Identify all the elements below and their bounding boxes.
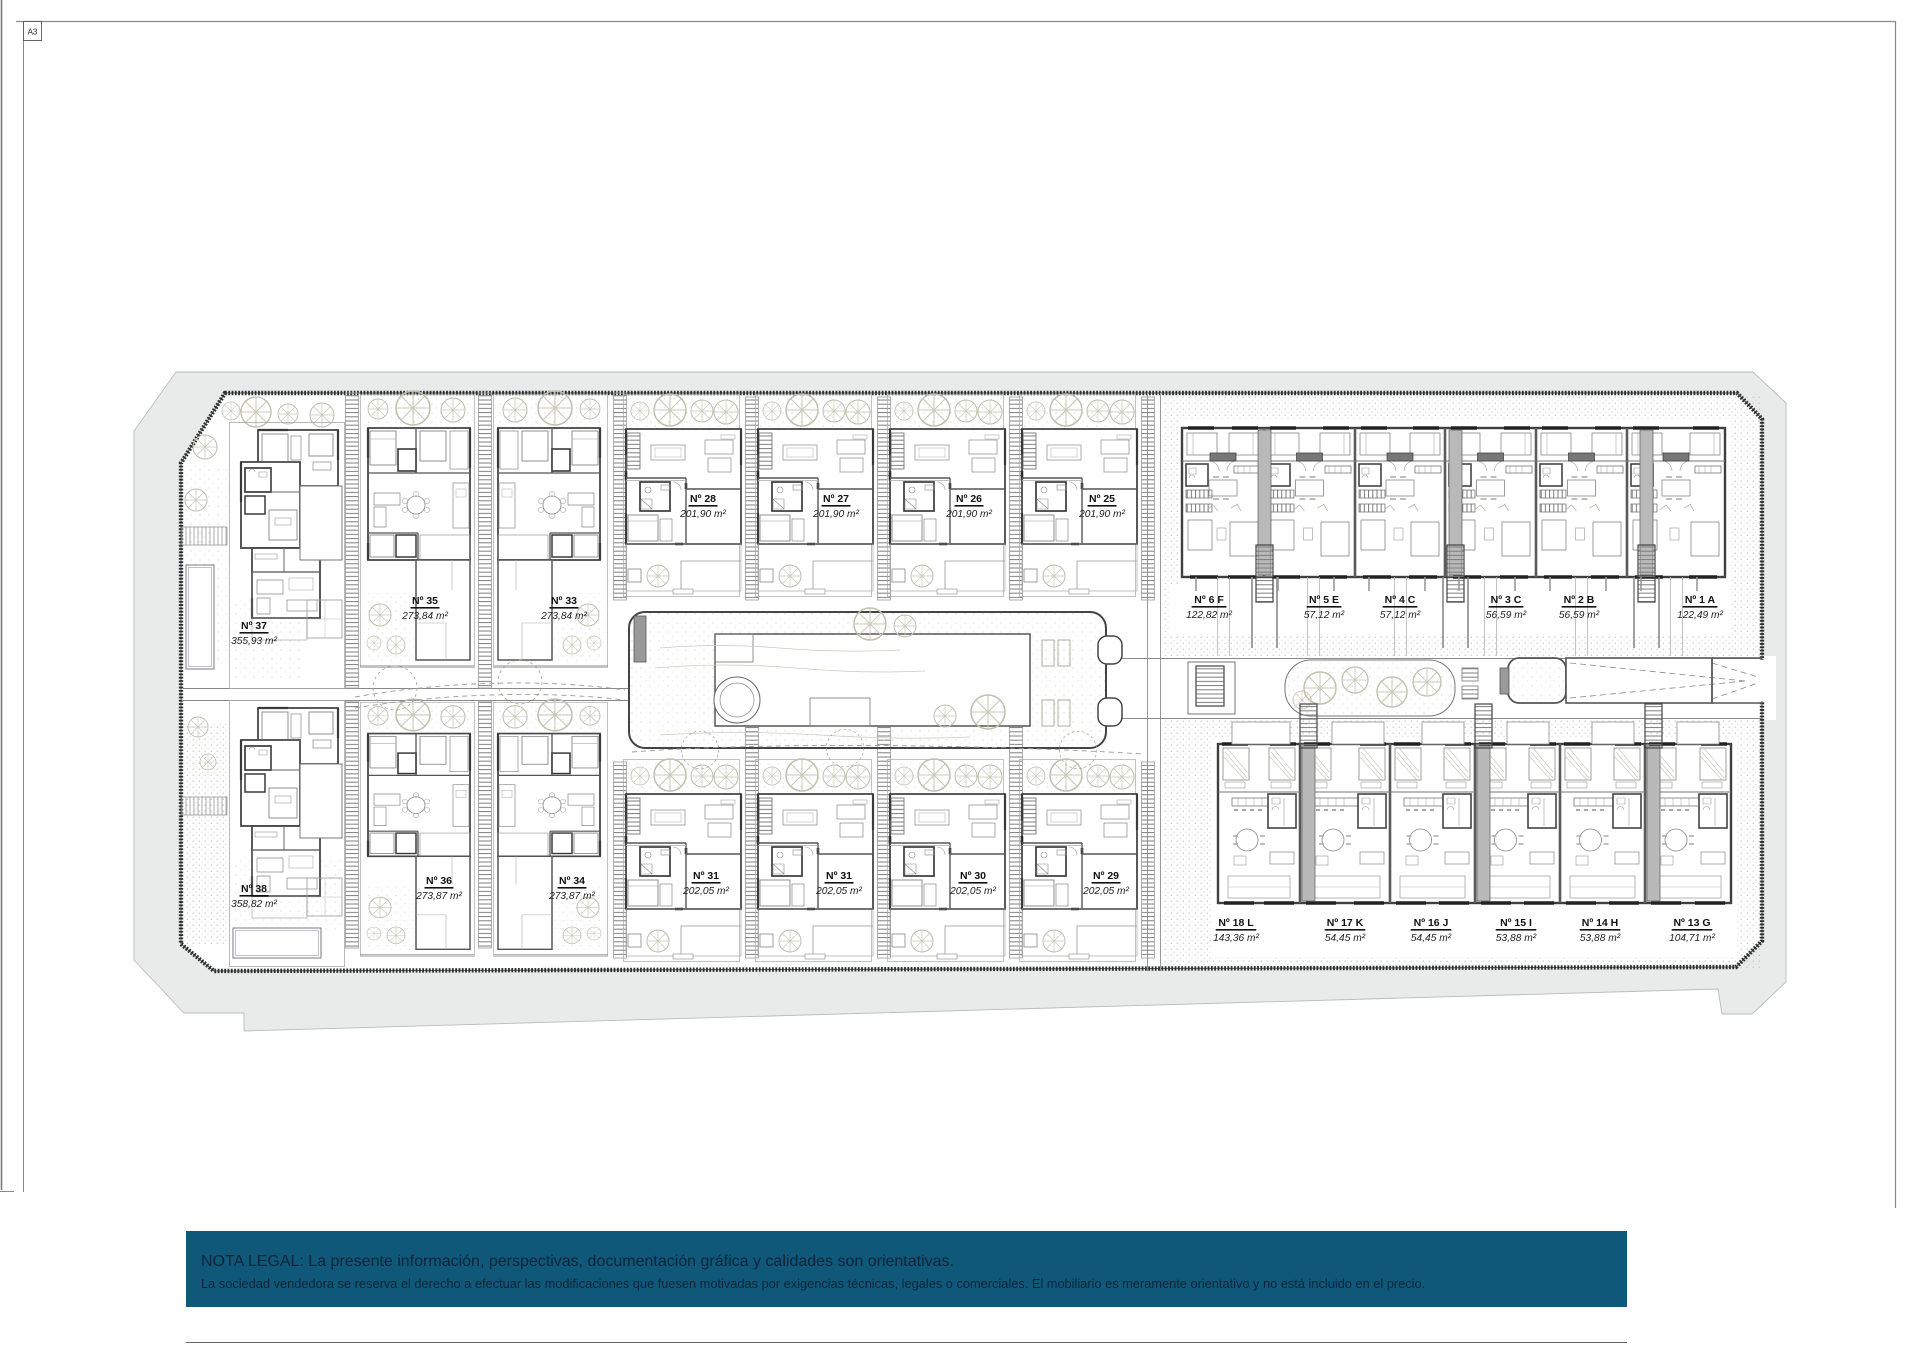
svg-text:Nº 26: Nº 26: [956, 493, 982, 505]
svg-text:Nº 31: Nº 31: [693, 870, 719, 882]
svg-text:122,49 m²: 122,49 m²: [1677, 610, 1723, 621]
svg-text:202,05 m²: 202,05 m²: [815, 886, 862, 897]
svg-text:57,12 m²: 57,12 m²: [1380, 610, 1421, 621]
svg-text:56,59 m²: 56,59 m²: [1559, 610, 1600, 621]
svg-text:NOTA LEGAL: La presente inform: NOTA LEGAL: La presente información, per…: [201, 1253, 954, 1270]
svg-text:Nº 34: Nº 34: [559, 875, 585, 887]
svg-text:Nº 15 I: Nº 15 I: [1500, 917, 1532, 929]
svg-text:104,71 m²: 104,71 m²: [1669, 933, 1715, 944]
svg-text:201,90 m²: 201,90 m²: [812, 509, 859, 520]
svg-text:355,93 m²: 355,93 m²: [231, 636, 277, 647]
svg-text:Nº 14 H: Nº 14 H: [1582, 917, 1619, 929]
svg-text:Nº 30: Nº 30: [960, 870, 986, 882]
svg-text:273,84 m²: 273,84 m²: [540, 611, 587, 622]
svg-text:A3: A3: [28, 28, 38, 37]
svg-text:Nº 16 J: Nº 16 J: [1414, 917, 1449, 929]
svg-text:54,45 m²: 54,45 m²: [1411, 933, 1452, 944]
svg-text:Nº 37: Nº 37: [241, 620, 267, 632]
svg-text:Nº 25: Nº 25: [1089, 493, 1115, 505]
svg-text:54,45 m²: 54,45 m²: [1325, 933, 1366, 944]
svg-text:Nº 29: Nº 29: [1093, 870, 1119, 882]
svg-text:53,88 m²: 53,88 m²: [1580, 933, 1621, 944]
svg-text:273,84 m²: 273,84 m²: [401, 611, 448, 622]
svg-text:122,82 m²: 122,82 m²: [1186, 610, 1232, 621]
svg-text:Nº 17 K: Nº 17 K: [1327, 917, 1364, 929]
svg-text:Nº 4 C: Nº 4 C: [1385, 594, 1416, 606]
svg-text:202,05 m²: 202,05 m²: [682, 886, 729, 897]
svg-text:Nº 1 A: Nº 1 A: [1685, 594, 1716, 606]
svg-text:358,82 m²: 358,82 m²: [231, 899, 277, 910]
svg-text:Nº 18 L: Nº 18 L: [1218, 917, 1254, 929]
svg-text:143,36 m²: 143,36 m²: [1213, 933, 1259, 944]
svg-text:Nº 6 F: Nº 6 F: [1194, 594, 1224, 606]
svg-text:201,90 m²: 201,90 m²: [679, 509, 726, 520]
svg-text:57,12 m²: 57,12 m²: [1304, 610, 1345, 621]
svg-text:Nº 27: Nº 27: [823, 493, 849, 505]
svg-text:201,90 m²: 201,90 m²: [1078, 509, 1125, 520]
svg-text:Nº 36: Nº 36: [426, 875, 452, 887]
svg-text:Nº 3 C: Nº 3 C: [1491, 594, 1522, 606]
svg-text:202,05 m²: 202,05 m²: [1082, 886, 1129, 897]
svg-text:273,87 m²: 273,87 m²: [548, 891, 595, 902]
svg-text:Nº 33: Nº 33: [551, 595, 577, 607]
svg-text:Nº 31: Nº 31: [826, 870, 852, 882]
svg-text:202,05 m²: 202,05 m²: [949, 886, 996, 897]
svg-text:56,59 m²: 56,59 m²: [1486, 610, 1527, 621]
svg-text:273,87 m²: 273,87 m²: [415, 891, 462, 902]
svg-text:Nº 5 E: Nº 5 E: [1309, 594, 1339, 606]
svg-text:201,90 m²: 201,90 m²: [945, 509, 992, 520]
svg-text:Nº 2 B: Nº 2 B: [1564, 594, 1595, 606]
svg-text:La sociedad vendedora se reser: La sociedad vendedora se reserva el dere…: [201, 1276, 1425, 1291]
svg-text:Nº 13 G: Nº 13 G: [1673, 917, 1710, 929]
svg-text:Nº 38: Nº 38: [241, 883, 267, 895]
svg-text:Nº 35: Nº 35: [412, 595, 438, 607]
svg-text:53,88 m²: 53,88 m²: [1496, 933, 1537, 944]
svg-text:Nº 28: Nº 28: [690, 493, 716, 505]
